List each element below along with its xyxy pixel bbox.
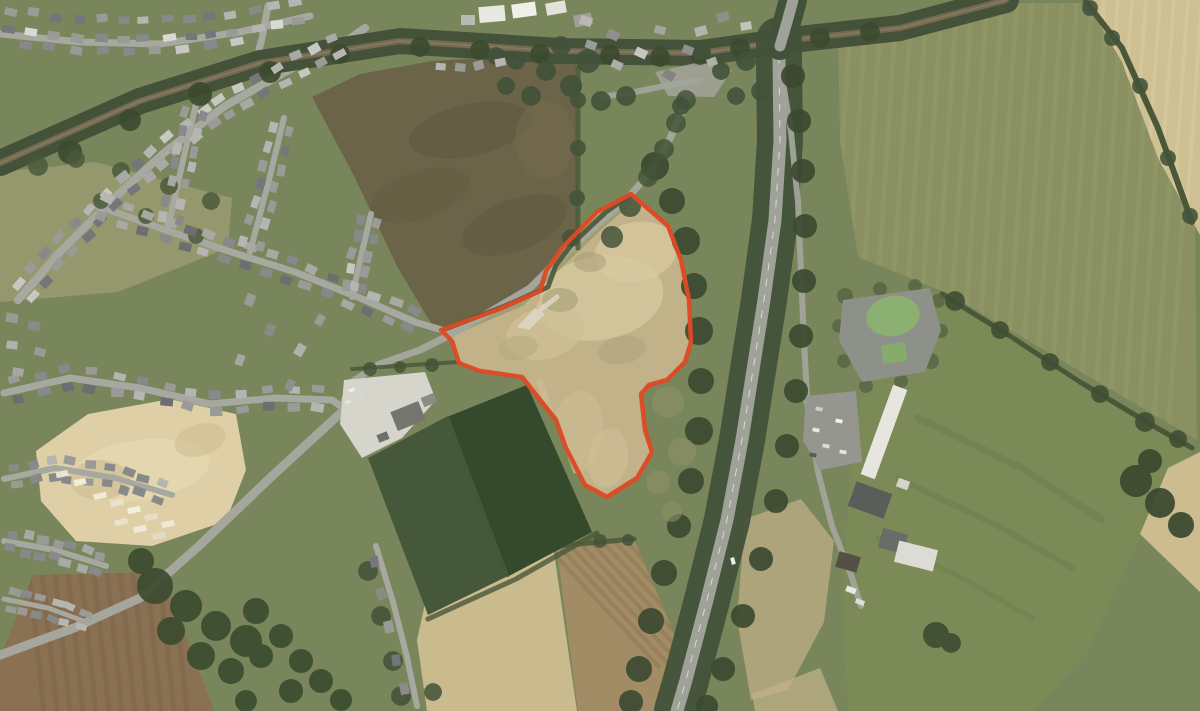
house-roof: [342, 279, 351, 291]
house-roof: [86, 367, 98, 375]
house-roof: [36, 535, 49, 545]
house-roof: [263, 402, 275, 411]
house-roof: [11, 480, 23, 488]
tree-blob: [736, 51, 756, 71]
tree-blob: [249, 644, 273, 668]
tree-blob: [279, 679, 303, 703]
house-roof: [2, 25, 16, 34]
tree-blob: [784, 379, 808, 403]
house-roof: [119, 16, 130, 24]
house-roof: [123, 47, 135, 55]
tree-blob: [1041, 353, 1059, 371]
brown-field-streak: [515, 100, 575, 180]
house-roof: [210, 407, 222, 416]
tree-blob: [309, 669, 333, 693]
tree-blob: [638, 167, 658, 187]
house-roof: [27, 7, 39, 17]
tree-blob: [789, 324, 813, 348]
house-roof: [160, 397, 173, 406]
house-roof: [262, 385, 273, 394]
tree-blob: [810, 28, 830, 48]
tree-blob: [616, 86, 636, 106]
tree-blob: [650, 47, 670, 67]
tree-blob: [410, 37, 430, 57]
tree-blob: [424, 683, 442, 701]
aerial-photo: [0, 0, 1200, 711]
tree-blob: [1169, 430, 1187, 448]
house-roof: [33, 552, 46, 561]
tree-blob: [576, 49, 600, 73]
playground-green-court-item: [881, 342, 907, 364]
industrial-buildings-north-item: [461, 15, 475, 25]
tree-blob: [497, 77, 515, 95]
tree-blob: [791, 159, 815, 183]
house-roof: [291, 17, 305, 26]
tree-blob: [1135, 412, 1155, 432]
tree-blob: [668, 438, 696, 466]
tree-blob: [591, 91, 611, 111]
tree-blob: [873, 282, 887, 296]
tree-blob: [394, 361, 406, 373]
house-roof: [111, 388, 124, 397]
industrial-buildings-north-item: [478, 5, 505, 23]
tree-blob: [1160, 150, 1176, 166]
house-roof: [137, 16, 148, 24]
tree-blob: [1182, 208, 1198, 224]
tree-blob: [775, 434, 799, 458]
house-roof: [277, 164, 286, 177]
tree-blob: [235, 690, 257, 711]
tree-blob: [711, 657, 735, 681]
tree-blob: [289, 649, 313, 673]
house-roof: [46, 455, 57, 465]
tree-blob: [860, 22, 880, 42]
house-roof: [96, 13, 108, 22]
tree-blob: [638, 608, 664, 634]
playground-green-court: [881, 342, 907, 364]
house-roof: [369, 234, 378, 245]
site-mottle: [542, 288, 578, 312]
tree-blob: [601, 226, 623, 248]
house-roof: [186, 33, 198, 40]
site-mottle: [574, 252, 606, 272]
house-roof: [97, 45, 110, 54]
house-roof: [157, 211, 168, 223]
tree-blob: [551, 36, 571, 56]
house-roof: [235, 390, 246, 399]
house-roof: [270, 20, 283, 30]
tree-blob: [1138, 449, 1162, 473]
house-roof: [287, 402, 300, 412]
tree-blob: [28, 156, 48, 176]
tree-blob: [470, 40, 490, 60]
tree-blob: [330, 689, 352, 711]
tree-blob: [787, 109, 811, 133]
house-roof: [183, 15, 196, 23]
house-roof: [94, 551, 105, 561]
house-roof: [208, 390, 221, 399]
tree-blob: [560, 75, 582, 97]
tree-blob: [569, 190, 585, 206]
tree-blob: [691, 41, 711, 61]
tree-blob: [646, 470, 670, 494]
tree-blob: [666, 113, 686, 133]
tree-blob: [941, 633, 961, 653]
tree-blob: [1082, 0, 1098, 16]
map-canvas: [0, 0, 1200, 711]
house-roof: [149, 46, 161, 55]
tree-blob: [651, 560, 677, 586]
tree-blob: [672, 97, 690, 115]
tree-blob: [119, 109, 141, 131]
house-roof: [185, 388, 197, 397]
house-roof: [435, 63, 446, 71]
house-roof: [8, 464, 19, 472]
house-roof: [353, 229, 363, 242]
house-roof: [12, 394, 23, 404]
tree-blob: [792, 269, 816, 293]
tree-blob: [727, 87, 745, 105]
tree-blob: [157, 617, 185, 645]
house-roof: [47, 31, 60, 41]
tree-blob: [67, 150, 85, 168]
tree-blob: [128, 548, 154, 574]
house-roof: [50, 13, 62, 23]
house-roof: [346, 263, 355, 274]
house-roof: [117, 36, 129, 43]
tree-blob: [688, 368, 714, 394]
tree-blob: [662, 502, 682, 522]
tree-blob: [507, 52, 525, 70]
house-roof: [227, 29, 238, 37]
tree-blob: [626, 656, 652, 682]
house-roof: [85, 460, 96, 469]
house-roof: [7, 531, 17, 540]
tree-blob: [1104, 30, 1120, 46]
tree-blob: [188, 82, 212, 106]
tree-blob: [593, 534, 607, 548]
tree-blob: [749, 547, 773, 571]
tree-blob: [218, 658, 244, 684]
tree-blob: [781, 64, 805, 88]
tree-blob: [202, 192, 220, 210]
tree-blob: [530, 44, 550, 64]
tree-blob: [764, 489, 788, 513]
tree-blob: [269, 624, 293, 648]
houses-west-edge-item: [6, 341, 18, 350]
tree-blob: [945, 291, 965, 311]
house-roof: [391, 654, 401, 666]
tree-blob: [678, 468, 704, 494]
house-roof: [312, 384, 325, 393]
house-roof: [102, 479, 113, 487]
tree-blob: [659, 188, 685, 214]
tree-blob: [521, 86, 541, 106]
tree-blob: [243, 598, 269, 624]
tree-blob: [536, 61, 556, 81]
tree-blob: [652, 386, 684, 418]
tree-blob: [1168, 512, 1194, 538]
house-roof: [95, 33, 108, 42]
tree-blob: [363, 362, 377, 376]
tree-blob: [170, 590, 202, 622]
house-roof: [20, 549, 31, 558]
house-roof: [181, 178, 190, 189]
tree-blob: [622, 534, 634, 546]
tree-blob: [1145, 488, 1175, 518]
tree-blob: [1091, 385, 1109, 403]
tree-blob: [201, 611, 231, 641]
tree-blob: [1132, 78, 1148, 94]
tree-blob: [570, 140, 586, 156]
tree-blob: [425, 358, 439, 372]
house-roof: [136, 34, 149, 42]
tree-blob: [187, 642, 215, 670]
tree-blob: [793, 214, 817, 238]
tree-blob: [731, 604, 755, 628]
house-roof: [170, 157, 179, 169]
tree-blob: [751, 81, 771, 101]
house-roof: [455, 63, 466, 72]
tree-blob: [991, 321, 1009, 339]
tree-blob: [654, 139, 674, 159]
house-roof: [162, 15, 174, 23]
